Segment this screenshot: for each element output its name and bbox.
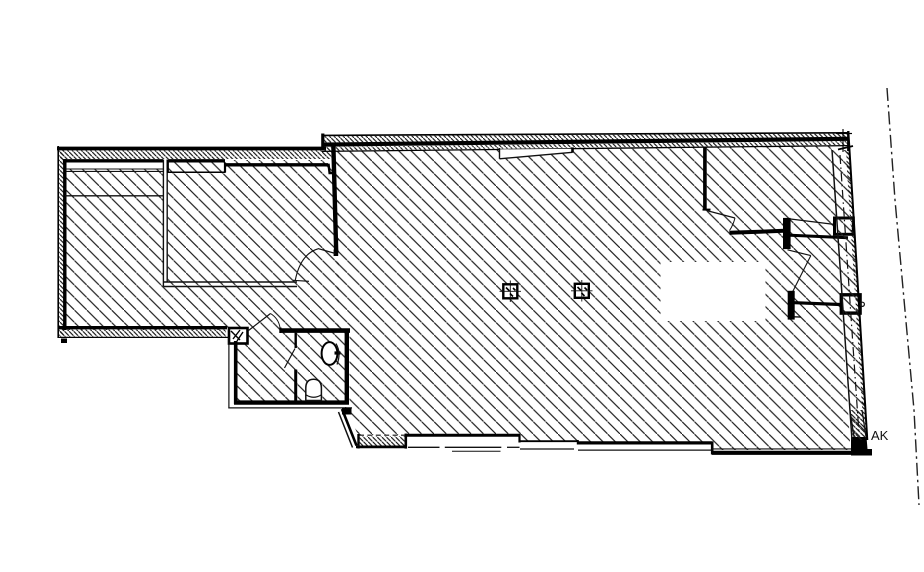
- svg-text:AK: AK: [871, 428, 889, 443]
